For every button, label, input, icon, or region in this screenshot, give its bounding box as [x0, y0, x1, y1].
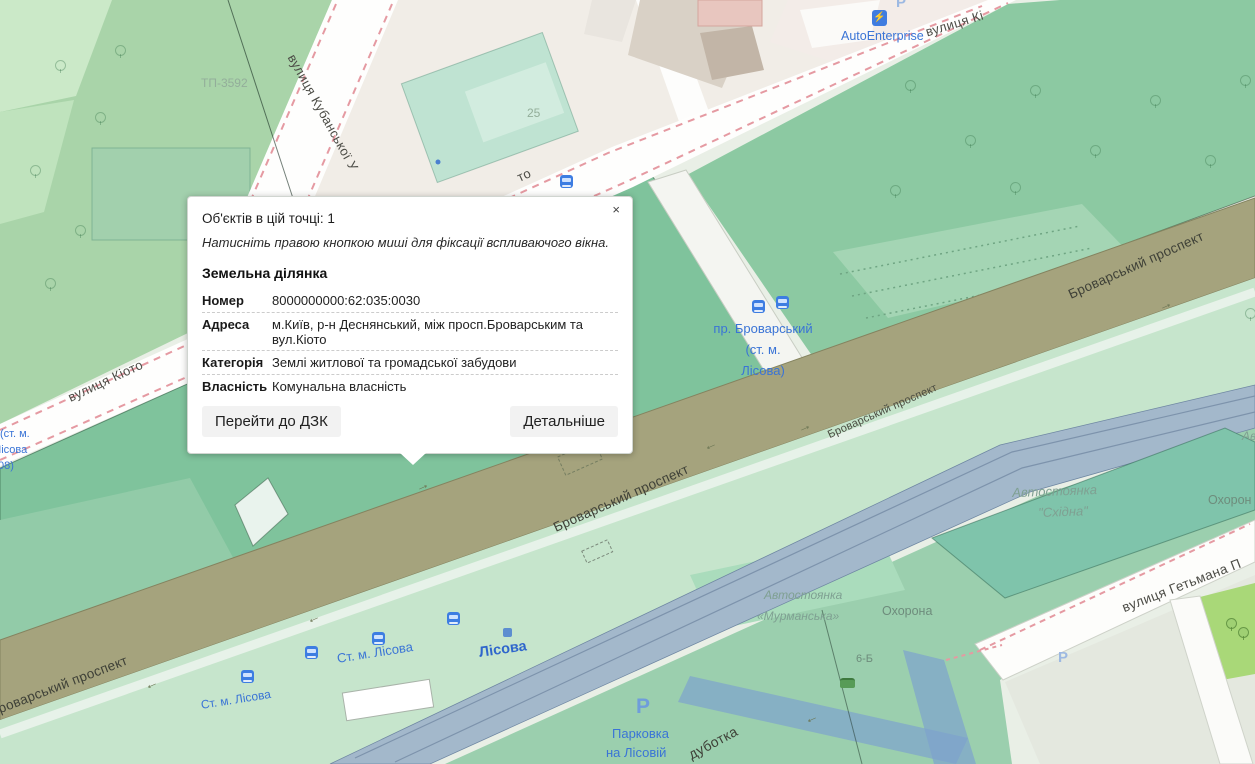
parcel-fields-table: Номер8000000000:62:035:0030Адресам.Київ,…	[202, 289, 618, 397]
field-value: 8000000000:62:035:0030	[272, 293, 618, 308]
popup-pointer	[400, 453, 426, 465]
field-value: Землі житлової та громадської забудови	[272, 355, 618, 370]
popup-actions: Перейти до ДЗК Детальніше	[202, 406, 618, 437]
field-label: Адреса	[202, 317, 272, 332]
parcel-section-title: Земельна ділянка	[202, 265, 618, 281]
parcel-field-row: ВласністьКомунальна власність	[202, 375, 618, 398]
details-button[interactable]: Детальніше	[510, 406, 618, 437]
field-label: Категорія	[202, 355, 272, 370]
parcel-field-row: Адресам.Київ, р-н Деснянський, між просп…	[202, 313, 618, 352]
go-to-dzk-button[interactable]: Перейти до ДЗК	[202, 406, 341, 437]
field-value: Комунальна власність	[272, 379, 618, 394]
objects-count-text: Об'єктів в цій точці: 1	[202, 211, 618, 226]
map-info-popup: × Об'єктів в цій точці: 1 Натисніть прав…	[187, 196, 633, 454]
parcel-field-row: КатегоріяЗемлі житлової та громадської з…	[202, 351, 618, 375]
map-application: ТП-3592вулиця Кубанської У25вулиця Кіото…	[0, 0, 1255, 764]
parcel-field-row: Номер8000000000:62:035:0030	[202, 289, 618, 313]
field-label: Власність	[202, 379, 272, 394]
close-icon[interactable]: ×	[608, 200, 624, 219]
field-label: Номер	[202, 293, 272, 308]
field-value: м.Київ, р-н Деснянський, між просп.Брова…	[272, 317, 618, 347]
popup-hint-text: Натисніть правою кнопкою миші для фіксац…	[202, 235, 618, 250]
